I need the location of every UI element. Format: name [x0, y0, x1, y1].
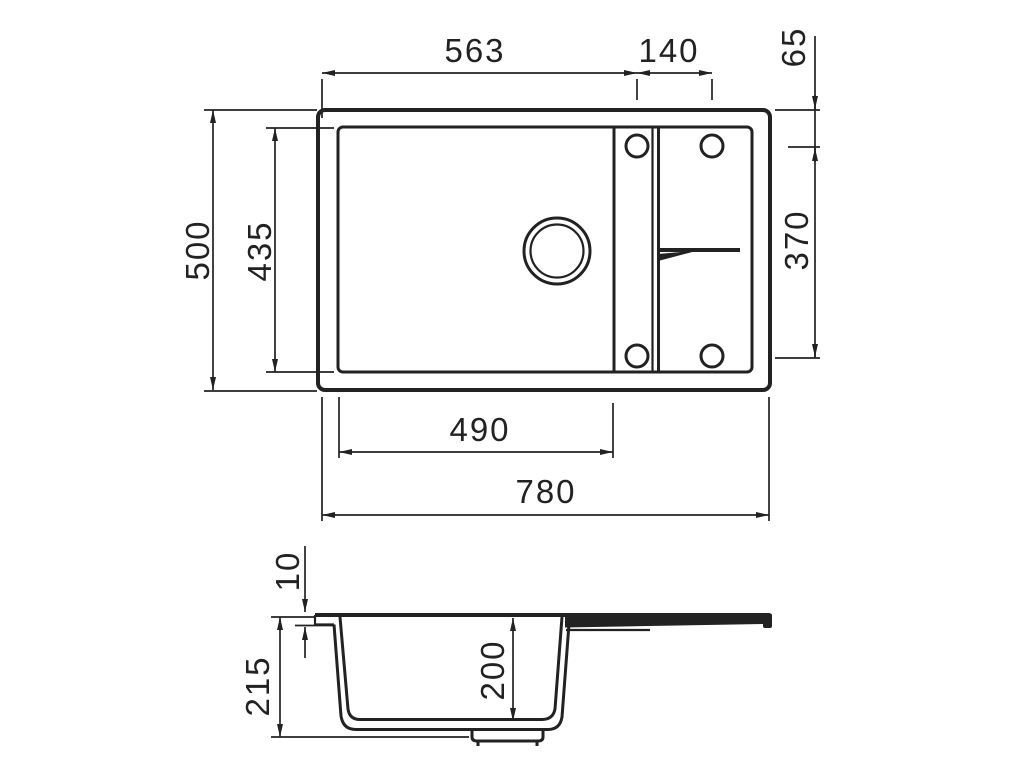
dimension-200: 200: [474, 618, 513, 721]
sink-section-view: 10 215 200: [239, 546, 772, 746]
dimension-65: 65: [775, 27, 820, 358]
dimension-140: 140: [637, 32, 712, 100]
dimension-label-370: 370: [778, 209, 815, 270]
overflow-slot-wedge: [658, 251, 698, 262]
dimension-label-215: 215: [239, 655, 276, 716]
dimension-label-490: 490: [449, 411, 510, 448]
dimension-10: 10: [269, 546, 334, 658]
dimension-label-435: 435: [241, 220, 278, 281]
dimension-label-563: 563: [444, 32, 505, 69]
dimension-label-500: 500: [179, 219, 216, 280]
dimension-370: 370: [775, 209, 820, 358]
dimension-label-65: 65: [775, 27, 812, 68]
dimension-780: 780: [322, 397, 769, 521]
section-bowl-outer-wall: [334, 624, 569, 730]
drain-hole-outer: [524, 218, 590, 284]
section-drainboard-surface: [565, 617, 764, 628]
drain-hole-inner: [531, 225, 584, 278]
dimension-435: 435: [241, 128, 334, 372]
dimension-label-200: 200: [474, 639, 511, 700]
tap-hole-bottom-left: [626, 345, 648, 367]
tap-hole-bottom-right: [701, 345, 723, 367]
dimension-490: 490: [339, 397, 613, 458]
sink-technical-drawing: 563 140 65 370 500: [0, 0, 1024, 768]
sink-plan-view: 563 140 65 370 500: [179, 27, 820, 521]
dimension-label-780: 780: [515, 473, 576, 510]
tap-hole-top-right: [701, 135, 723, 157]
dimension-label-140: 140: [638, 32, 699, 69]
tap-hole-top-left: [626, 135, 648, 157]
dimension-563: 563: [322, 32, 637, 118]
drawing-canvas: 563 140 65 370 500: [0, 0, 1024, 768]
section-drainboard-front-edge: [763, 614, 772, 629]
section-bowl-inner-wall: [340, 617, 562, 720]
dimension-label-10: 10: [269, 551, 306, 592]
